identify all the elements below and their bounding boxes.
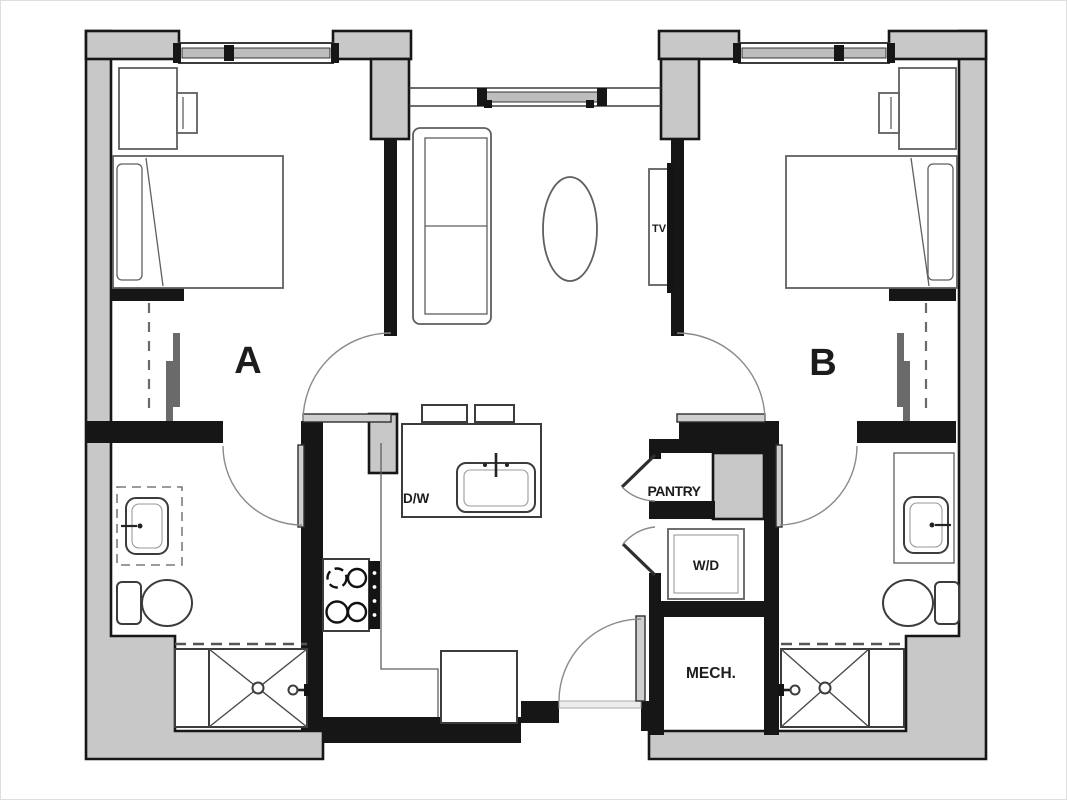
closet-b-door-panel xyxy=(897,333,904,407)
island-stool xyxy=(475,405,514,422)
closet-a-stub-wall xyxy=(111,287,184,301)
wall-bedroom-a-living xyxy=(384,139,397,336)
toilet-a-tank xyxy=(117,582,141,624)
wall-leg-a xyxy=(371,59,409,139)
entry xyxy=(559,616,645,708)
entry-door xyxy=(636,616,645,701)
wall-entry-left xyxy=(521,701,559,723)
coffee-table xyxy=(543,177,597,281)
bedroom-a: A xyxy=(113,68,391,422)
shower-b-head xyxy=(791,686,800,695)
wd-door-swing xyxy=(623,527,655,544)
bathroom-a-door-swing xyxy=(223,446,302,525)
closet-a-door-panel xyxy=(166,361,173,421)
bathroom-a-door xyxy=(298,445,304,527)
window-bedroom-a xyxy=(173,43,339,63)
exterior-wall-top-a-right xyxy=(333,31,411,59)
bathroom-b-door-swing xyxy=(780,446,857,525)
toilet-b-bowl xyxy=(883,580,933,626)
wall-pantry-top xyxy=(649,439,779,453)
bedroom-b-door xyxy=(677,414,765,422)
tv-label: TV xyxy=(652,223,667,235)
wall-bedroom-b-bath-east xyxy=(857,421,956,443)
exterior-wall-top-a-left xyxy=(86,31,179,59)
mechanical-label: MECH. xyxy=(686,665,736,682)
wall-entry-right xyxy=(641,701,653,731)
tv-screen xyxy=(667,163,674,293)
window-bedroom-b xyxy=(733,43,895,63)
entry-threshold xyxy=(559,701,641,708)
bedroom-b: B xyxy=(677,68,957,422)
desk-b xyxy=(899,68,956,149)
pantry-label: PANTRY xyxy=(648,483,702,499)
plumbing-chase xyxy=(713,453,764,519)
wall-pantry-bottom xyxy=(649,501,715,519)
bedroom-a-door xyxy=(303,414,391,422)
washer-dryer-label: W/D xyxy=(693,558,719,573)
bedroom-a-label: A xyxy=(234,340,261,382)
kitchen-wall-stub xyxy=(369,414,397,473)
toilet-a-bowl xyxy=(142,580,192,626)
floor-plan: A TV D/W xyxy=(0,0,1067,800)
bed-b xyxy=(786,156,957,288)
shower-a-head xyxy=(289,686,298,695)
dishwasher-label: D/W xyxy=(403,491,430,506)
refrigerator xyxy=(441,651,517,723)
windows xyxy=(173,43,895,108)
wall-leg-b xyxy=(661,59,699,139)
living-room: TV xyxy=(413,128,674,324)
toilet-b-tank xyxy=(935,582,959,624)
wd-door xyxy=(623,544,655,575)
shower-b-bench xyxy=(869,649,904,727)
bedroom-b-door-swing xyxy=(677,333,765,421)
bed-a xyxy=(113,156,283,288)
wall-wd-bottom xyxy=(649,601,766,617)
window-living-room xyxy=(409,88,661,108)
bedroom-b-label: B xyxy=(809,342,836,384)
wall-bedroom-a-bath xyxy=(86,421,223,443)
chair-a xyxy=(177,93,197,133)
window-mullion xyxy=(224,45,234,61)
entry-door-swing xyxy=(559,619,641,701)
exterior-wall-top-b-left xyxy=(659,31,739,59)
island-stool xyxy=(422,405,467,422)
desk-a xyxy=(119,68,177,149)
closet-b-stub-wall xyxy=(889,287,956,301)
kitchen: D/W xyxy=(323,405,541,723)
closet-a-door-panel xyxy=(173,333,180,407)
shower-b-drain xyxy=(820,683,831,694)
exterior-wall-top-b-right xyxy=(889,31,986,59)
bathroom-b-door xyxy=(776,445,782,527)
window-mullion xyxy=(834,45,844,61)
floor-plan-drawing: A TV D/W xyxy=(1,1,1067,801)
shower-a-bench xyxy=(175,649,209,727)
shower-a-drain xyxy=(253,683,264,694)
bedroom-a-door-swing xyxy=(303,333,391,421)
closet-b-door-panel xyxy=(903,361,910,421)
chair-b xyxy=(879,93,899,133)
